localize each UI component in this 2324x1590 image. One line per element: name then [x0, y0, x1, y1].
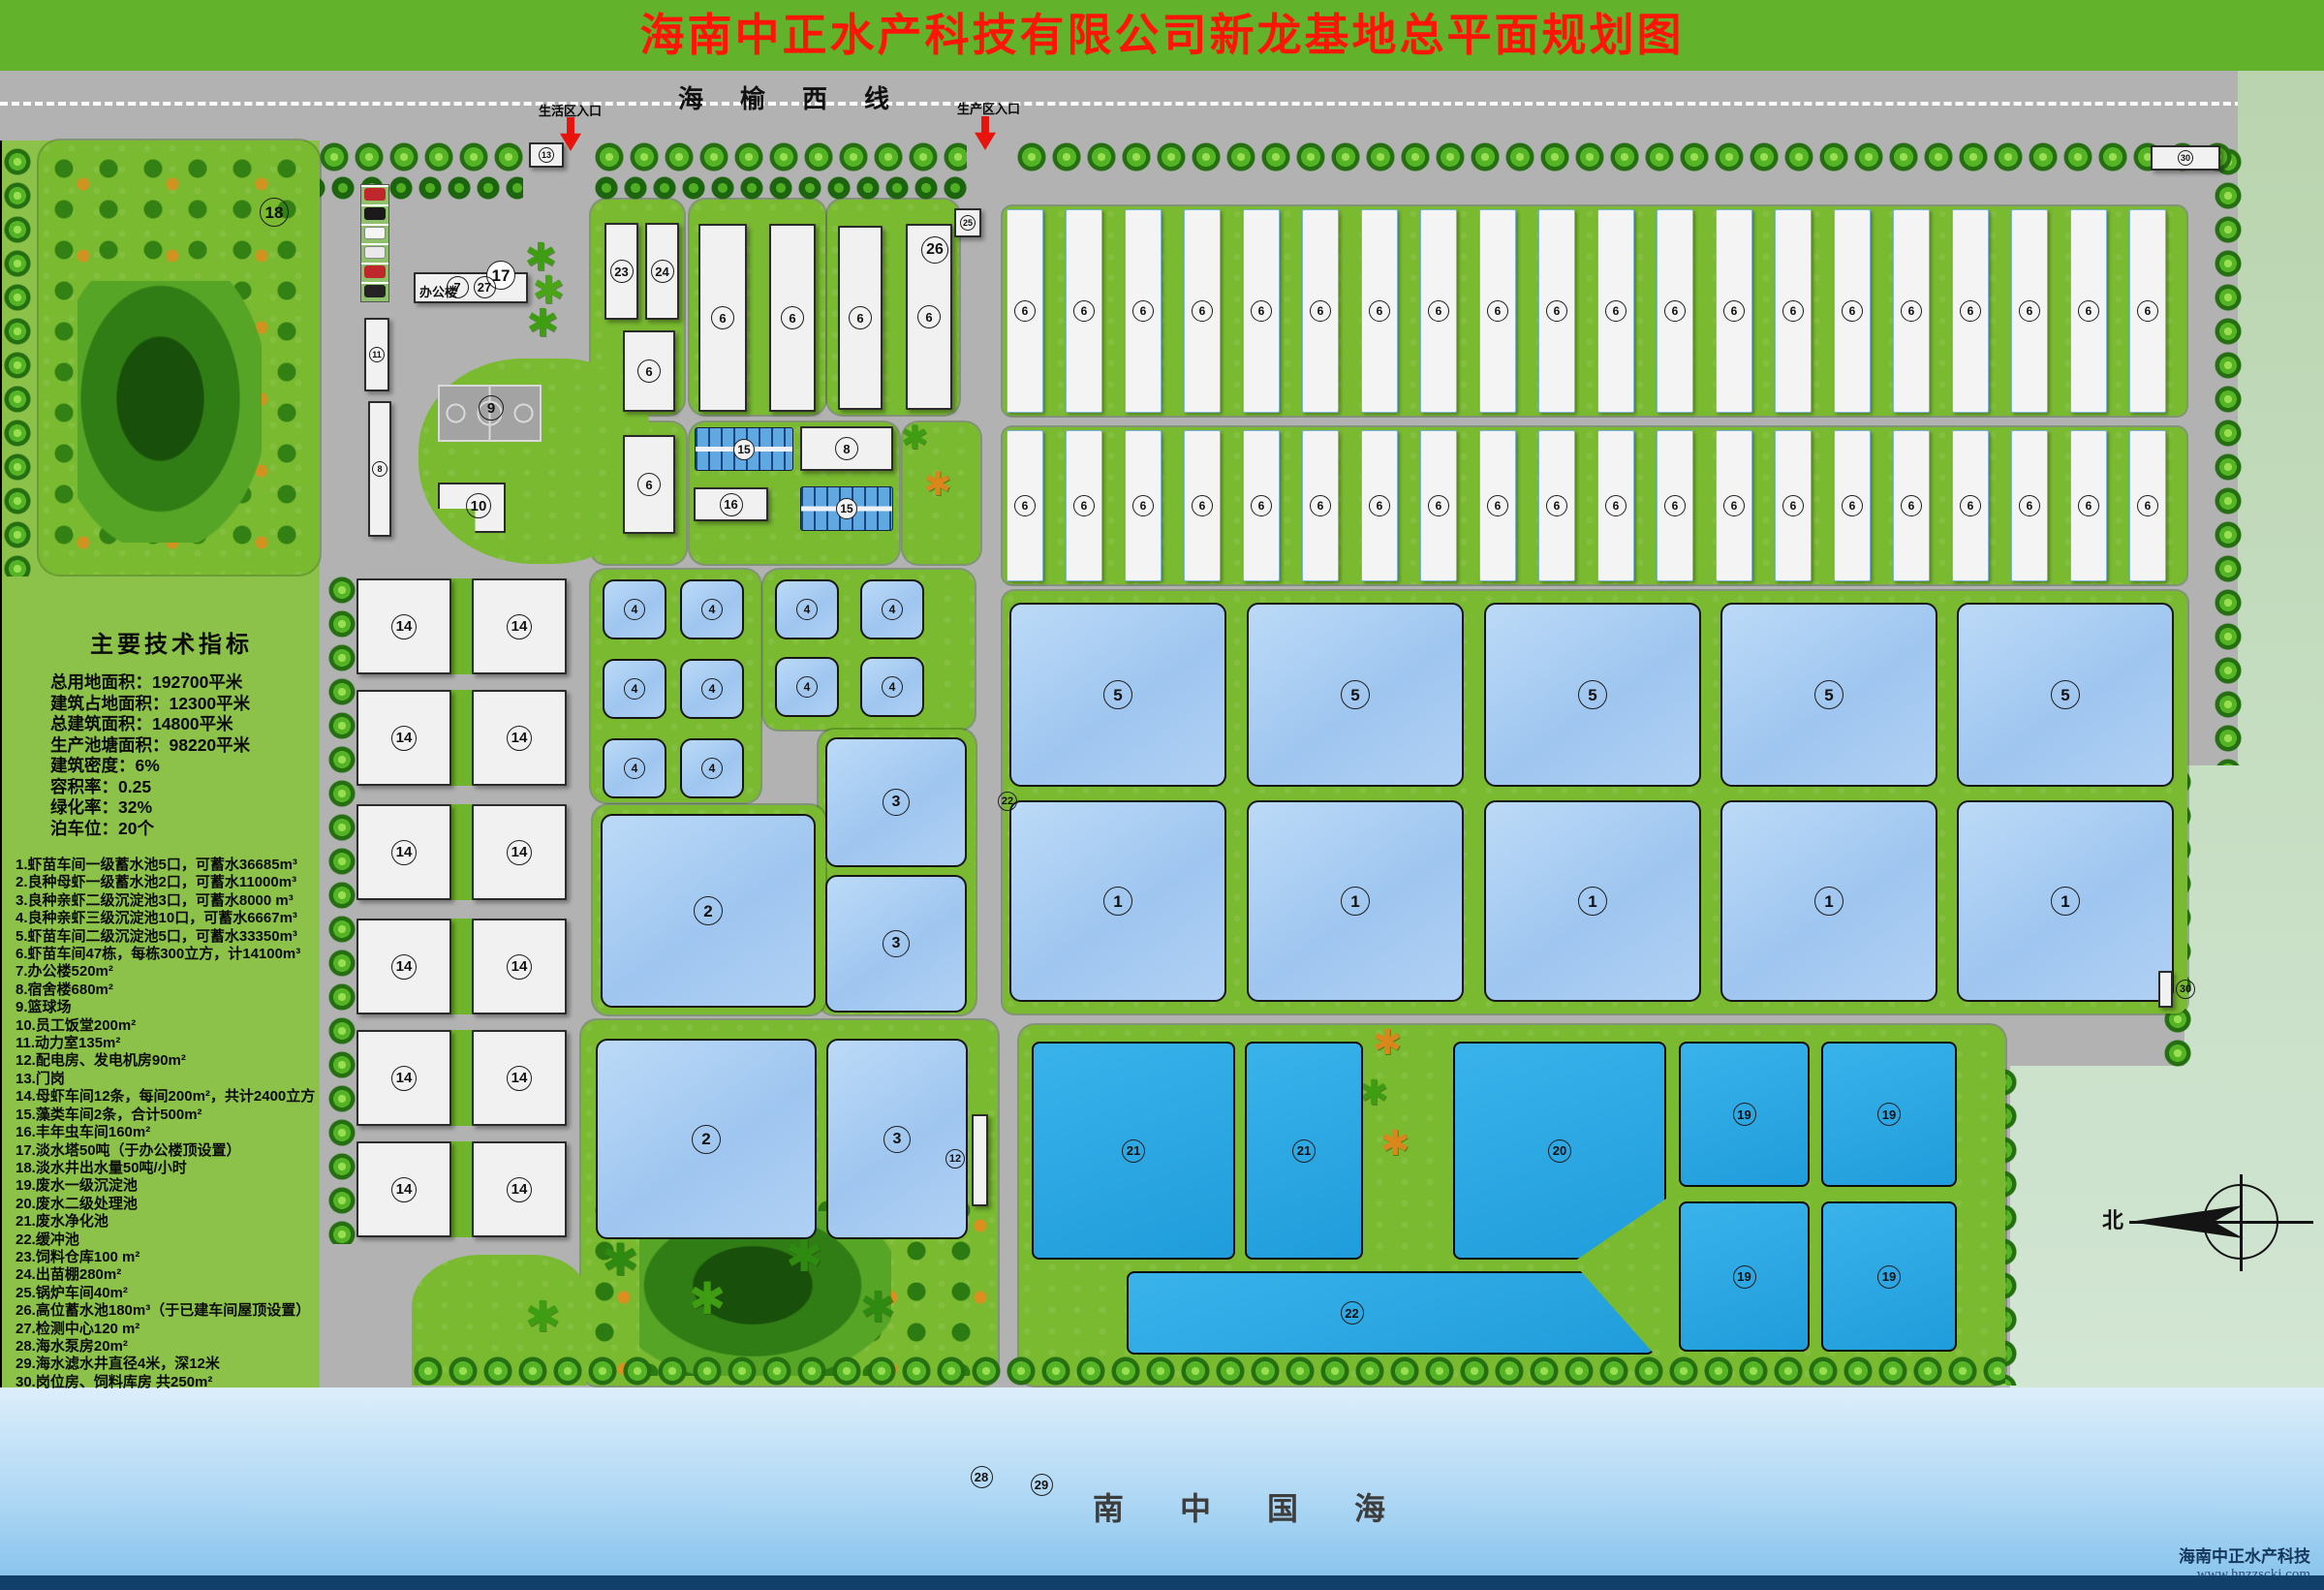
workshop14-green-strip	[451, 690, 472, 786]
palm-tree-icon: ✱	[526, 304, 559, 343]
marker-6: 6	[2137, 300, 2158, 322]
legend-item: 5.虾苗车间二级沉淀池5口，可蓄水33350m³	[15, 928, 364, 946]
workshop-band-1	[1003, 206, 2186, 416]
marker-6: 6	[1901, 495, 1922, 516]
marker-6: 6	[1014, 495, 1036, 516]
legend-item: 17.淡水塔50吨（于办公楼顶设置）	[15, 1142, 364, 1160]
marker-15: 15	[733, 439, 755, 460]
legend: 1.虾苗车间一级蓄水池5口，可蓄水36685m³2.良种母虾一级蓄水池2口，可蓄…	[15, 857, 364, 1391]
marker-6: 6	[1782, 495, 1804, 516]
marker-1: 1	[1103, 887, 1132, 916]
legend-item: 2.良种母虾一级蓄水池2口，可蓄水11000m³	[15, 874, 364, 891]
marker-4: 4	[882, 599, 903, 620]
marker-28: 28	[971, 1466, 993, 1488]
marker-14: 14	[507, 1066, 532, 1091]
car	[364, 227, 386, 239]
tech-indicators: 主要技术指标 总用地面积：192700平米建筑占地面积：12300平米总建筑面积…	[50, 625, 341, 839]
legend-item: 4.良种亲虾三级沉淀池10口，可蓄水6667m³	[15, 910, 364, 927]
marker-1: 1	[1341, 887, 1370, 916]
marker-6: 6	[1546, 300, 1567, 322]
marker-6: 6	[1782, 300, 1804, 322]
marker-4: 4	[796, 676, 818, 698]
car	[364, 285, 386, 297]
legend-item: 26.高位蓄水池180m³（于已建车间屋顶设置）	[15, 1302, 364, 1320]
legend-item: 12.配电房、发电机房90m²	[15, 1052, 364, 1070]
forest-edge-trees	[2, 145, 35, 577]
marker-11: 11	[369, 347, 385, 362]
marker-6: 6	[1192, 495, 1213, 516]
marker-6: 6	[1310, 300, 1331, 322]
legend-item: 21.废水净化池	[15, 1213, 364, 1231]
workshop14-green-strip	[451, 578, 472, 674]
marker-5: 5	[2051, 680, 2080, 709]
legend-item: 18.淡水井出水量50吨/小时	[15, 1160, 364, 1177]
marker-6: 6	[849, 306, 872, 329]
marker-6: 6	[2019, 300, 2040, 322]
marker-18: 18	[260, 198, 289, 227]
legend-item: 13.门岗	[15, 1071, 364, 1088]
marker-6: 6	[1192, 300, 1213, 322]
marker-6: 6	[1842, 495, 1863, 516]
forest-cluster	[77, 281, 262, 543]
title-band: 海南中正水产科技有限公司新龙基地总平面规划图	[0, 0, 2324, 71]
marker-7: 7	[447, 276, 469, 298]
marker-20: 20	[1548, 1139, 1571, 1163]
compass-north-label: 北	[2102, 1203, 2123, 1234]
marker-6: 6	[1073, 300, 1095, 322]
marker-4: 4	[796, 599, 818, 620]
marker-15: 15	[836, 498, 857, 519]
marker-4: 4	[882, 676, 903, 698]
tech-line: 总用地面积：192700平米	[50, 672, 341, 694]
marker-6: 6	[1901, 300, 1922, 322]
marker-6: 6	[1369, 300, 1390, 322]
legend-item: 24.出苗棚280m²	[15, 1266, 364, 1284]
marker-3: 3	[883, 930, 910, 957]
highway-center-line	[0, 102, 2324, 106]
south-boundary-trees	[412, 1355, 2005, 1387]
marker-5: 5	[1341, 680, 1370, 709]
marker-1: 1	[2051, 887, 2080, 916]
marker-10: 10	[466, 493, 491, 518]
tech-line: 绿化率：32%	[50, 797, 341, 819]
building-30	[2158, 971, 2173, 1008]
marker-19: 19	[1877, 1265, 1901, 1289]
marker-22: 22	[1341, 1301, 1364, 1325]
compass-vertical	[2240, 1174, 2243, 1271]
marker-26: 26	[921, 236, 948, 264]
marker-21: 21	[1122, 1139, 1145, 1163]
marker-6: 6	[1251, 300, 1272, 322]
site-plan-canvas: 海南中正水产科技有限公司新龙基地总平面规划图 海榆西线 生活区入口 生产区入口 …	[0, 0, 2324, 1590]
workshop14-green-strip	[451, 804, 472, 900]
legend-item: 30.岗位房、饲料库房 共250m²	[15, 1374, 364, 1391]
legend-item: 3.良种亲虾二级沉淀池3口，可蓄水8000 m³	[15, 892, 364, 910]
tech-line: 建筑占地面积：12300平米	[50, 694, 341, 715]
marker-6: 6	[781, 306, 804, 329]
sea-name: 南中国海	[1093, 1484, 1441, 1529]
legend-item: 11.动力室135m²	[15, 1035, 364, 1052]
marker-14: 14	[507, 840, 532, 865]
legend-item: 16.丰年虫车间160m²	[15, 1124, 364, 1141]
legend-item: 25.锅炉车间40m²	[15, 1285, 364, 1302]
palm-tree-icon: ✱	[860, 1287, 896, 1329]
marker-6: 6	[1132, 495, 1154, 516]
legend-item: 15.藻类车间2条，合计500m²	[15, 1107, 364, 1124]
legend-item: 22.缓冲池	[15, 1231, 364, 1249]
car	[364, 207, 386, 220]
highway-name: 海榆西线	[678, 79, 926, 115]
palm-tree-icon: ✱	[1380, 1126, 1410, 1161]
marker-14: 14	[507, 614, 532, 639]
marker-21: 21	[1292, 1139, 1316, 1163]
marker-6: 6	[1723, 495, 1745, 516]
workshop14-green-strip	[451, 1141, 472, 1237]
marker-6: 6	[711, 306, 734, 329]
marker-6: 6	[1073, 495, 1095, 516]
footer-bar	[0, 1575, 2324, 1590]
palm-tree-icon: ✱	[924, 468, 952, 501]
marker-2: 2	[694, 896, 723, 925]
marker-4: 4	[624, 599, 645, 620]
logo-company: 海南中正水产科技	[2073, 1543, 2310, 1567]
marker-19: 19	[1877, 1103, 1901, 1126]
marker-13: 13	[539, 147, 554, 163]
palm-tree-icon: ✱	[689, 1276, 727, 1321]
entrance-label-living: 生活区入口	[539, 101, 602, 119]
marker-14: 14	[391, 614, 417, 639]
tech-title: 主要技术指标	[50, 625, 293, 659]
marker-6: 6	[1369, 495, 1390, 516]
legend-item: 29.海水滤水井直径4米，深12米	[15, 1356, 364, 1373]
palm-tree-icon: ✱	[786, 1233, 823, 1278]
legend-item: 20.废水二级处理池	[15, 1196, 364, 1213]
plan-title: 海南中正水产科技有限公司新龙基地总平面规划图	[640, 0, 1685, 71]
marker-6: 6	[1842, 300, 1863, 322]
marker-6: 6	[1310, 495, 1331, 516]
marker-14: 14	[391, 1177, 417, 1202]
road-tree-row-2	[593, 140, 967, 175]
legend-item: 9.篮球场	[15, 999, 364, 1016]
marker-14: 14	[391, 954, 417, 980]
legend-item: 10.员工饭堂200m²	[15, 1017, 364, 1035]
marker-6: 6	[1014, 300, 1036, 322]
marker-6: 6	[2137, 495, 2158, 516]
marker-25: 25	[960, 215, 976, 231]
boundary-trees-east-1	[2213, 145, 2246, 765]
legend-item: 14.母虾车间12条，每间200m²，共计2400立方	[15, 1088, 364, 1106]
marker-6: 6	[917, 305, 941, 328]
marker-6: 6	[1723, 300, 1745, 322]
marker-19: 19	[1733, 1265, 1756, 1289]
palm-tree-icon: ✱	[901, 421, 929, 454]
marker-8: 8	[835, 437, 858, 460]
marker-4: 4	[701, 599, 723, 620]
marker-14: 14	[391, 726, 417, 751]
legend-item: 1.虾苗车间一级蓄水池5口，可蓄水36685m³	[15, 857, 364, 874]
marker-6: 6	[637, 359, 661, 383]
workshop14-green-strip	[451, 919, 472, 1014]
marker-4: 4	[701, 678, 723, 700]
marker-6: 6	[1960, 300, 1981, 322]
legend-item: 7.办公楼520m²	[15, 963, 364, 981]
marker-14: 14	[391, 1066, 417, 1091]
marker-6: 6	[1960, 495, 1981, 516]
marker-4: 4	[701, 758, 723, 779]
marker-4: 4	[624, 758, 645, 779]
marker-16: 16	[720, 493, 743, 516]
marker-6: 6	[637, 473, 661, 496]
marker-2: 2	[692, 1125, 721, 1154]
marker-6: 6	[2078, 300, 2099, 322]
palm-tree-icon: ✱	[1373, 1025, 1402, 1060]
marker-8: 8	[372, 461, 387, 477]
tech-line: 总建筑面积：14800平米	[50, 714, 341, 735]
pond-22	[1127, 1271, 1655, 1355]
car	[364, 188, 386, 201]
marker-30: 30	[2176, 980, 2195, 999]
palm-tree-icon: ✱	[1359, 1076, 1388, 1110]
marker-24: 24	[651, 260, 674, 283]
marker-12: 12	[945, 1149, 965, 1169]
marker-5: 5	[1103, 680, 1132, 709]
marker-6: 6	[2019, 495, 2040, 516]
marker-1: 1	[1578, 887, 1607, 916]
palm-tree-icon: ✱	[602, 1237, 639, 1282]
compass: 北	[2102, 1174, 2315, 1271]
marker-6: 6	[1664, 495, 1686, 516]
marker-9: 9	[479, 395, 504, 421]
marker-30: 30	[2178, 150, 2193, 166]
tech-line: 泊车位：20个	[50, 819, 341, 840]
workshop14-green-strip	[451, 1030, 472, 1126]
marker-5: 5	[1578, 680, 1607, 709]
car	[364, 246, 386, 259]
legend-item: 8.宿舍楼680m²	[15, 982, 364, 999]
legend-item: 6.虾苗车间47栋，每栋300立方，计14100m³	[15, 946, 364, 963]
legend-item: 28.海水泵房20m²	[15, 1338, 364, 1356]
marker-3: 3	[883, 1126, 911, 1153]
road-tree-row-3	[1015, 140, 2238, 175]
road-bush-row-2	[593, 174, 967, 202]
marker-4: 4	[624, 678, 645, 700]
marker-14: 14	[391, 840, 417, 865]
marker-23: 23	[610, 260, 634, 283]
tech-line: 容积率：0.25	[50, 777, 341, 798]
marker-6: 6	[1251, 495, 1272, 516]
marker-6: 6	[1487, 300, 1508, 322]
marker-6: 6	[1132, 300, 1154, 322]
marker-6: 6	[1487, 495, 1508, 516]
marker-6: 6	[2078, 495, 2099, 516]
tech-line: 建筑密度：6%	[50, 756, 341, 777]
marker-19: 19	[1733, 1103, 1756, 1126]
marker-6: 6	[1605, 495, 1627, 516]
marker-14: 14	[507, 726, 532, 751]
marker-29: 29	[1031, 1474, 1053, 1496]
palm-tree-icon: ✱	[525, 1296, 561, 1339]
marker-6: 6	[1428, 495, 1449, 516]
highway	[0, 71, 2324, 140]
marker-6: 6	[1546, 495, 1567, 516]
legend-item: 19.废水一级沉淀池	[15, 1177, 364, 1195]
marker-6: 6	[1664, 300, 1686, 322]
marker-22: 22	[998, 792, 1017, 811]
legend-item: 23.饲料仓库100 m²	[15, 1249, 364, 1266]
marker-27: 27	[474, 276, 496, 298]
marker-5: 5	[1814, 680, 1844, 709]
building-12	[972, 1114, 988, 1206]
tech-lines: 总用地面积：192700平米建筑占地面积：12300平米总建筑面积：14800平…	[50, 672, 341, 839]
marker-14: 14	[507, 954, 532, 980]
marker-1: 1	[1814, 887, 1844, 916]
marker-14: 14	[507, 1177, 532, 1202]
legend-item: 27.检测中心120 m²	[15, 1321, 364, 1338]
car	[364, 265, 386, 278]
marker-6: 6	[1605, 300, 1627, 322]
marker-6: 6	[1428, 300, 1449, 322]
marker-3: 3	[883, 789, 910, 816]
entrance-label-production: 生产区入口	[957, 99, 1020, 117]
tech-line: 生产池塘面积：98220平米	[50, 735, 341, 757]
workshop-band-2	[1003, 427, 2186, 584]
